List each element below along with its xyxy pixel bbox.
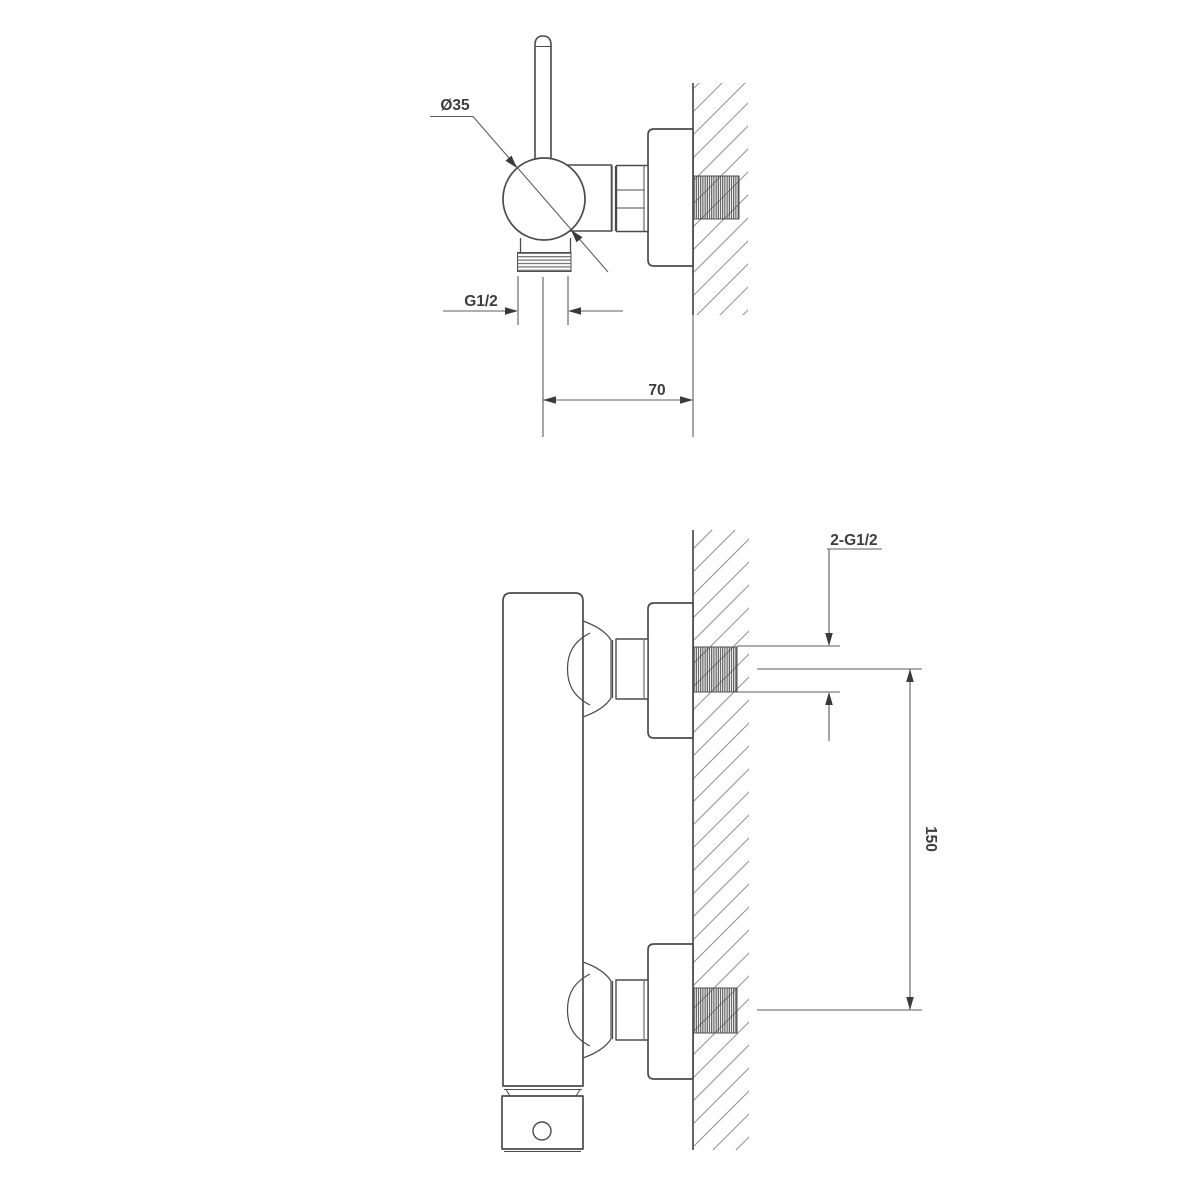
- outlet-thread: [518, 253, 572, 272]
- lower-wall-flange: [648, 944, 693, 1079]
- label-wall-distance: 70: [648, 382, 665, 399]
- technical-drawing-canvas: Ø35 G1/2 70: [0, 0, 1200, 1200]
- hose-outlet-port: [533, 1122, 551, 1140]
- union-nut: [617, 166, 649, 232]
- label-knob-diameter: Ø35: [440, 97, 470, 114]
- wall-flange: [648, 129, 693, 266]
- side-view: Ø35 G1/2 70: [430, 36, 748, 437]
- front-view: 2-G1/2 150: [502, 530, 939, 1152]
- lower-inlet-thread: [694, 988, 737, 1033]
- mixer-column: [503, 593, 583, 1086]
- upper-inlet-thread: [694, 647, 737, 692]
- label-outlet-thread: G1/2: [464, 293, 498, 310]
- label-inlet-threads: 2-G1/2: [830, 532, 877, 549]
- column-collar: [504, 1090, 582, 1097]
- inlet-thread: [694, 176, 739, 219]
- technical-drawing-page: Ø35 G1/2 70: [0, 0, 1200, 1200]
- shower-outlet: [518, 238, 572, 272]
- upper-wall-flange: [648, 603, 693, 738]
- label-inlet-spacing: 150: [922, 826, 939, 852]
- bottom-cap: [502, 1096, 583, 1152]
- lever-handle: [535, 36, 551, 162]
- wall-hatch: [693, 530, 749, 1150]
- dim-inlet-threads: 2-G1/2: [737, 532, 882, 741]
- dim-wall-distance: 70: [543, 382, 693, 404]
- dim-outlet-thread: G1/2: [443, 276, 623, 325]
- dim-inlet-spacing: 150: [757, 669, 939, 1010]
